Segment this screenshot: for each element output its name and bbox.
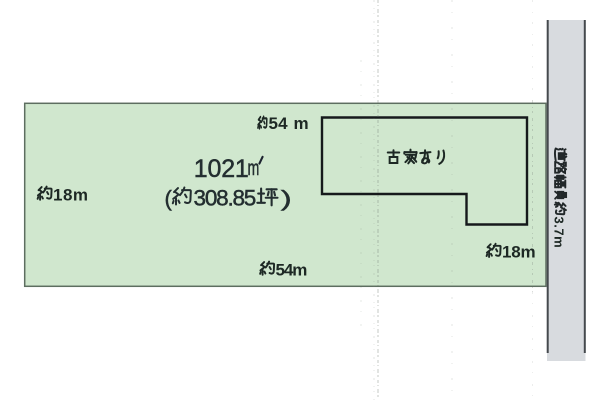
svg-text:18m: 18m: [53, 186, 89, 205]
svg-text:(: (: [165, 186, 173, 211]
svg-text:308.85: 308.85: [194, 186, 256, 211]
svg-text:1021: 1021: [194, 155, 249, 183]
svg-text:54: 54: [269, 114, 289, 133]
svg-text:m: m: [294, 114, 309, 133]
svg-text:m: m: [248, 156, 260, 180]
svg-text:18m: 18m: [502, 243, 536, 262]
svg-text:54m: 54m: [276, 260, 308, 279]
svg-text:3.7m: 3.7m: [551, 217, 566, 249]
svg-text:): ): [281, 186, 292, 210]
